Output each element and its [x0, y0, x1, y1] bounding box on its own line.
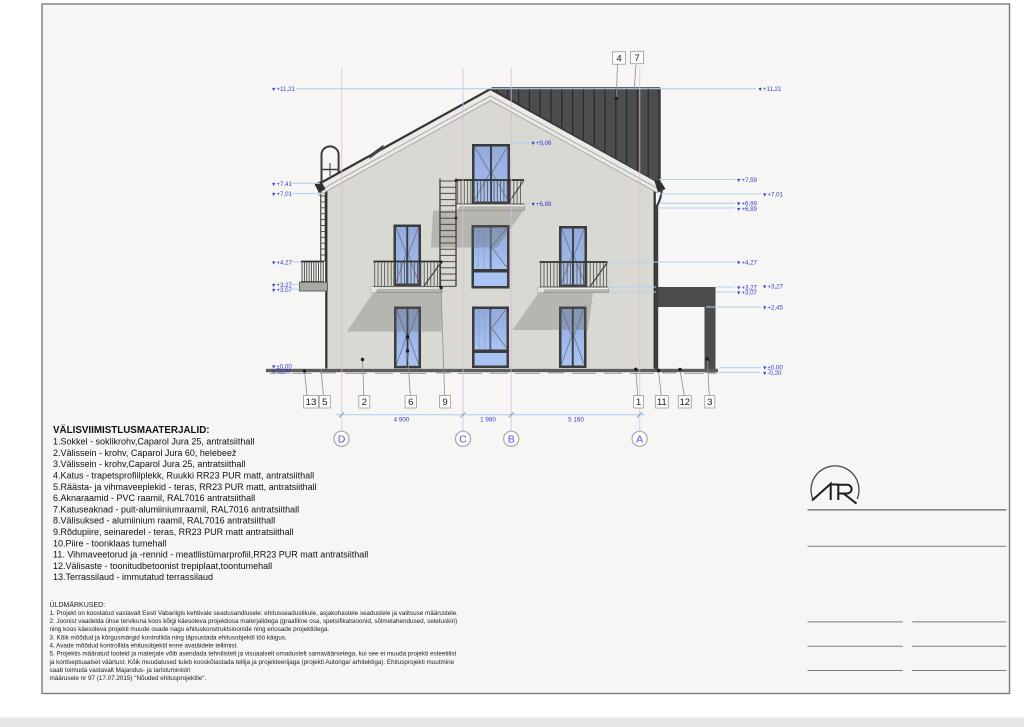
svg-text:3.Välissein - krohv,Caparol Ju: 3.Välissein - krohv,Caparol Jura 25, ant…	[53, 459, 245, 469]
svg-text:▼+3,27: ▼+3,27	[762, 283, 784, 290]
svg-text:5.Räästa- ja vihmaveeplekid -: 5.Räästa- ja vihmaveeplekid - teras, RR2…	[53, 482, 317, 492]
svg-text:VÄLISVIIMISTLUSMAATERJALID:: VÄLISVIIMISTLUSMAATERJALID:	[53, 425, 210, 436]
svg-text:▼+4,27: ▼+4,27	[736, 260, 758, 267]
svg-text:ning koos käesoleva projekti m: ning koos käesoleva projekti muude osade…	[50, 626, 330, 633]
svg-text:1. Projekt on koostatud vastav: 1. Projekt on koostatud vastavalt Eesti …	[50, 610, 459, 617]
svg-text:▼+6,89: ▼+6,89	[531, 201, 553, 208]
svg-text:D: D	[338, 434, 346, 446]
svg-text:9.Rõdupiire, seinaredel - tera: 9.Rõdupiire, seinaredel - teras, RR23 PU…	[53, 527, 294, 537]
svg-text:saab toimuda vastavalt Majandu: saab toimuda vastavalt Majandus- ja tari…	[50, 667, 191, 674]
svg-text:12: 12	[679, 397, 690, 408]
svg-text:▼+11,21: ▼+11,21	[271, 86, 296, 93]
svg-text:▼-0,20: ▼-0,20	[762, 370, 782, 377]
svg-text:4. Avade mõõdud kontrollida eh: 4. Avade mõõdud kontrollida ehitusobjekt…	[50, 643, 239, 650]
svg-text:▼+7,01: ▼+7,01	[762, 191, 784, 198]
svg-text:ja kontseptuaalset väärtust. K: ja kontseptuaalset väärtust. Kõik muudat…	[49, 659, 455, 666]
svg-text:2.Välissein - krohv, Caparol J: 2.Välissein - krohv, Caparol Jura 60, he…	[53, 448, 237, 458]
svg-text:▼+7,41: ▼+7,41	[271, 181, 293, 188]
svg-text:11: 11	[657, 397, 667, 408]
svg-text:4 900: 4 900	[394, 417, 410, 424]
svg-text:5 160: 5 160	[568, 417, 584, 424]
svg-text:B: B	[508, 434, 515, 446]
svg-text:13: 13	[306, 397, 317, 408]
svg-text:ÜLDMÄRKUSED:: ÜLDMÄRKUSED:	[50, 601, 106, 609]
svg-text:▼+4,27: ▼+4,27	[271, 260, 293, 267]
svg-text:13.Terrassilaud - immutatud te: 13.Terrassilaud - immutatud terrassilaud	[53, 572, 213, 582]
svg-text:5. Projektis määratud tooteid: 5. Projektis määratud tooteid ja materja…	[50, 651, 457, 658]
svg-text:7: 7	[634, 53, 639, 64]
svg-text:▼+7,01: ▼+7,01	[271, 191, 293, 198]
svg-text:määrusele nr 97 (17.07.2015) ": määrusele nr 97 (17.07.2015) "Nõuded ehi…	[50, 675, 207, 682]
svg-text:A: A	[636, 434, 643, 446]
svg-text:▼+2,45: ▼+2,45	[762, 304, 784, 311]
svg-text:▼+3,07: ▼+3,07	[271, 287, 293, 294]
svg-text:6: 6	[408, 397, 413, 408]
svg-text:11. Vihmaveetorud ja -rennid -: 11. Vihmaveetorud ja -rennid - meatllist…	[53, 550, 368, 560]
svg-text:2: 2	[362, 397, 367, 408]
svg-text:8.Välisuksed - alumiinium raam: 8.Välisuksed - alumiinium raamil, RAL701…	[53, 516, 275, 526]
svg-text:4.Katus - trapetsprofiilplekk,: 4.Katus - trapetsprofiilplekk, Ruukki RR…	[53, 471, 314, 481]
svg-text:1.Sokkel - soklikrohv,Caparol: 1.Sokkel - soklikrohv,Caparol Jura 25, a…	[53, 437, 254, 447]
svg-text:7.Katuseaknad - puit-alumiiniu: 7.Katuseaknad - puit-alumiiniumraamil, R…	[53, 504, 299, 514]
svg-text:2. Joonist vaadelda ühse tervi: 2. Joonist vaadelda ühse tervikuna koos …	[50, 618, 458, 625]
svg-text:▼+3,07: ▼+3,07	[736, 290, 758, 297]
svg-text:▼+11,21: ▼+11,21	[758, 86, 783, 93]
svg-text:10.Piire - toonklaas tumehall: 10.Piire - toonklaas tumehall	[53, 538, 167, 548]
svg-text:1 980: 1 980	[480, 417, 496, 424]
svg-text:C: C	[459, 434, 467, 446]
svg-text:12.Välisaste - toonitudbetooni: 12.Välisaste - toonitudbetoonist trepipl…	[53, 561, 272, 571]
svg-text:▼-0,20: ▼-0,20	[271, 369, 291, 376]
svg-text:4: 4	[616, 53, 622, 64]
svg-text:▼+7,59: ▼+7,59	[736, 177, 758, 184]
svg-text:5: 5	[322, 397, 327, 408]
svg-text:6.Aknaraamid - PVC raamil, RAL: 6.Aknaraamid - PVC raamil, RAL7016 antra…	[53, 493, 255, 503]
svg-text:3: 3	[707, 397, 712, 408]
svg-text:3. Kõik mõõdud ja kõrgusmärgid: 3. Kõik mõõdud ja kõrgusmärgid kontrolli…	[50, 634, 288, 641]
svg-text:1: 1	[636, 397, 641, 408]
svg-text:▼+9,06: ▼+9,06	[531, 140, 553, 147]
svg-text:▼+6,89: ▼+6,89	[736, 206, 758, 213]
svg-text:9: 9	[442, 397, 447, 408]
